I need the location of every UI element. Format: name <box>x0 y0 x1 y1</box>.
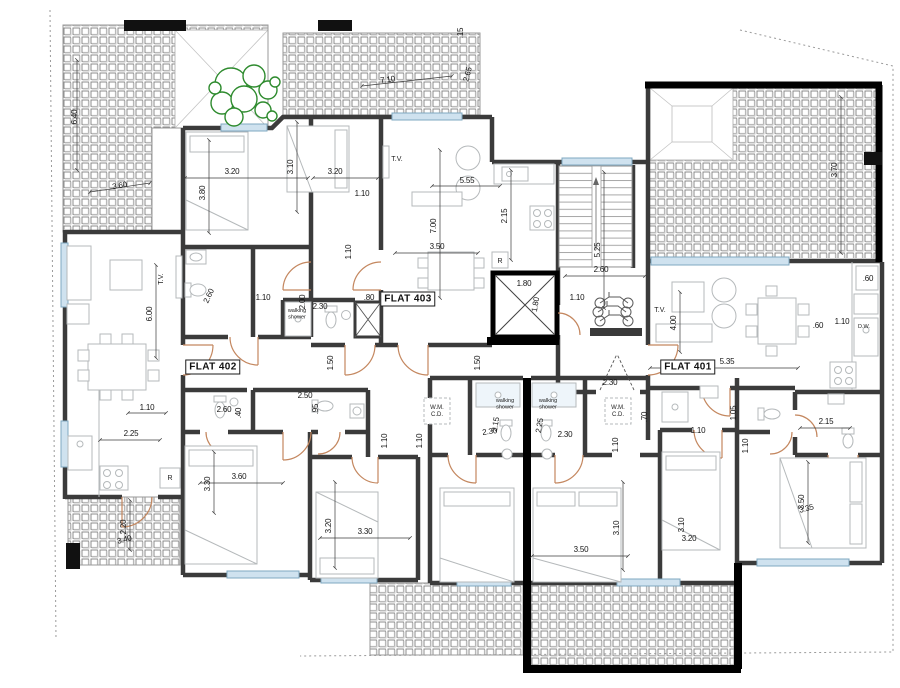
bed <box>533 488 621 582</box>
armchair <box>712 304 736 328</box>
dimension-label: .60 <box>813 321 824 330</box>
stove <box>100 466 128 490</box>
room-label: T.V. <box>158 273 165 284</box>
dimension-label: 2.30 <box>313 302 329 311</box>
dimension-label: 1.05 <box>729 405 738 421</box>
dimension-label: 6.00 <box>145 306 154 322</box>
bed <box>287 126 349 192</box>
duct-shaft <box>355 302 381 337</box>
dimension-label: 1.10 <box>691 426 707 435</box>
kitchen-sink <box>502 167 528 181</box>
dimension-label: 1.10 <box>415 433 424 449</box>
toilet <box>758 408 780 420</box>
dimension-label: .95 <box>311 403 320 414</box>
dimension-label: 3.20 <box>328 167 344 176</box>
dimension-label: 1.10 <box>835 317 851 326</box>
toilet <box>842 428 854 448</box>
dimension-label: 3.30 <box>203 476 212 492</box>
dimension-label: 4.00 <box>669 315 678 331</box>
washbasin <box>342 311 351 320</box>
dimension-label: 5.25 <box>593 242 602 258</box>
stove <box>830 362 856 388</box>
dimension-label: .40 <box>234 407 243 418</box>
dimension-label: 2.50 <box>298 391 314 400</box>
dimension-label: 2.60 <box>594 265 610 274</box>
room-label: walkingshower <box>495 398 514 411</box>
dimension-label: 2.15 <box>819 417 835 426</box>
dimension-label: 1.80 <box>517 279 533 288</box>
washbasin <box>502 449 512 459</box>
dimension-label: 1.10 <box>344 244 353 260</box>
bed <box>440 488 514 582</box>
bed <box>185 446 257 564</box>
armchair <box>456 146 480 170</box>
dimension-label: 3.10 <box>677 517 686 533</box>
dimension-label: 3.10 <box>286 159 295 175</box>
room-label: walkingshower <box>287 308 306 321</box>
dimension-label: 3.50 <box>430 242 446 251</box>
dimension-label: 3.50 <box>574 545 590 554</box>
sofa <box>67 246 91 324</box>
room-label: D.W. <box>858 324 870 330</box>
sofa <box>412 192 462 206</box>
flat-401-label: FLAT 401 <box>660 360 715 375</box>
dimension-label: .60 <box>863 274 874 283</box>
washbasin <box>186 250 206 264</box>
dimension-label: 7.00 <box>429 218 438 234</box>
washing-machine <box>605 398 631 424</box>
dimension-label: 3.70 <box>830 162 839 178</box>
dimension-label: 1.10 <box>741 438 750 454</box>
floor-plan-image: 6.403.607.10.152.653.203.803.103.201.105… <box>0 0 900 688</box>
dimension-label: 2.30 <box>558 430 574 439</box>
dimension-label: 3.30 <box>358 527 374 536</box>
dimension-label: 1.10 <box>355 189 371 198</box>
dimension-label: .70 <box>640 411 649 422</box>
dimension-label: 3.20 <box>682 534 698 543</box>
dimension-label: 2.15 <box>500 208 509 224</box>
dimension-label: 3.80 <box>198 185 207 201</box>
dishwasher <box>854 294 878 314</box>
dining-table <box>78 334 159 400</box>
dimension-label: 2.30 <box>603 378 619 387</box>
coffee-table <box>110 260 142 290</box>
dimension-label: 5.55 <box>460 176 476 185</box>
washbasin <box>542 449 552 459</box>
dimension-label: 3.20 <box>324 518 333 534</box>
dimension-label: 2.30 <box>482 426 499 437</box>
toilet <box>500 420 512 441</box>
washing-machine <box>350 404 364 418</box>
kitchen-sink <box>68 436 92 470</box>
dimension-label: 3.10 <box>612 520 621 536</box>
bicycle-icon <box>595 310 633 326</box>
washbasin <box>828 394 844 404</box>
dimension-label: .80 <box>364 293 375 302</box>
washing-machine <box>424 398 450 424</box>
dimension-label: 1.10 <box>140 403 156 412</box>
dimension-label: 5.35 <box>720 357 736 366</box>
dimension-label: 2.20 <box>119 519 128 535</box>
dimension-label: 3.60 <box>232 472 248 481</box>
tv-unit <box>383 146 389 178</box>
room-label: W.M.C.D. <box>430 405 444 418</box>
room-label: T.V. <box>391 156 402 163</box>
dining-table <box>418 252 484 290</box>
dimension-label: .15 <box>456 27 465 38</box>
room-label: T.V. <box>654 307 665 314</box>
tv-unit <box>176 256 182 298</box>
stove <box>530 206 554 230</box>
dimension-label: 1.10 <box>570 293 586 302</box>
sofa <box>656 324 712 342</box>
dimension-label: 3.20 <box>225 167 241 176</box>
room-label: W.M.C.D. <box>611 405 625 418</box>
bed <box>186 132 248 230</box>
dimension-label: 2.60 <box>217 405 233 414</box>
room-label: R <box>497 258 502 265</box>
coffee-table <box>672 282 704 312</box>
washbasin <box>700 386 718 398</box>
flat-403-label: FLAT 403 <box>380 292 435 307</box>
dining-table <box>746 286 809 356</box>
dimension-label: 6.40 <box>70 109 79 125</box>
floor-plan-canvas: 6.403.607.10.152.653.203.803.103.201.105… <box>0 0 900 688</box>
shower <box>662 392 688 422</box>
bicycle-rack <box>590 292 642 336</box>
flat-402-label: FLAT 402 <box>185 360 240 375</box>
dimension-label: 1.10 <box>256 293 272 302</box>
armchair <box>712 278 736 302</box>
bed <box>780 458 866 548</box>
room-label: walkingshower <box>538 398 557 411</box>
dimension-label: 1.50 <box>326 355 335 371</box>
dimension-label: 2.25 <box>124 429 140 438</box>
dimension-label: 1.10 <box>380 433 389 449</box>
toilet <box>185 283 206 297</box>
dimension-label: 1.10 <box>611 437 620 453</box>
dimension-label: 1.50 <box>473 355 482 371</box>
room-label: R <box>167 475 172 482</box>
